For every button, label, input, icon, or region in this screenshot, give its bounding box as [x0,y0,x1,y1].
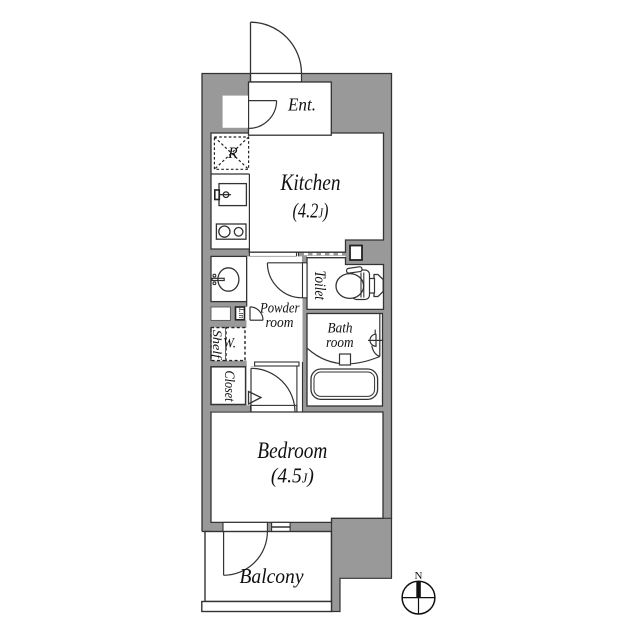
svg-text:(4.2J): (4.2J) [293,199,329,223]
svg-text:Shelf: Shelf [210,330,225,361]
svg-text:R: R [227,145,238,162]
svg-text:Closet: Closet [221,371,237,403]
svg-text:Ent.: Ent. [287,95,316,115]
svg-text:N: N [415,570,423,582]
svg-text:Toilet: Toilet [311,270,328,300]
svg-text:Lin: Lin [237,307,246,319]
svg-text:room: room [266,315,294,331]
svg-text:Kitchen: Kitchen [280,170,341,195]
svg-text:(4.5J): (4.5J) [271,464,314,488]
svg-text:Balcony: Balcony [240,564,305,588]
svg-text:Bedroom: Bedroom [257,438,327,464]
svg-text:room: room [326,335,354,351]
